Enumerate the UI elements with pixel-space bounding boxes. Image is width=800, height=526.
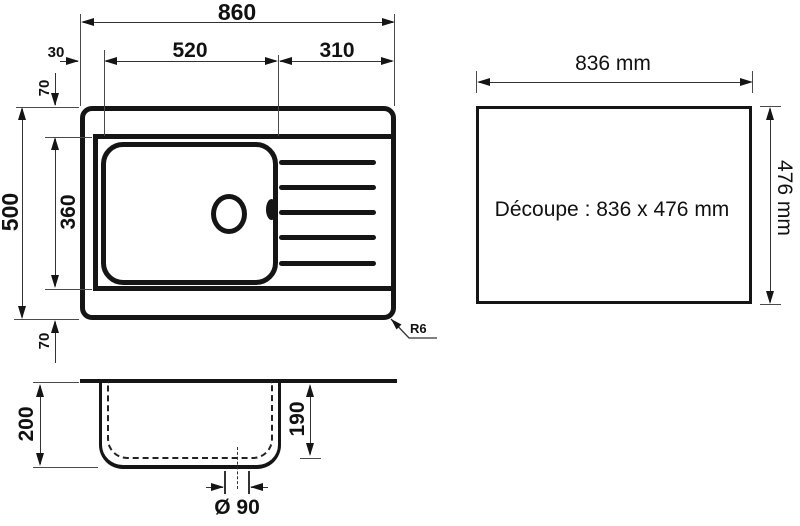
dim-label-860: 860 <box>197 1 277 24</box>
dim-line-360 <box>55 139 56 286</box>
bowl-outline <box>101 142 278 285</box>
extension-line <box>80 14 81 106</box>
cutout-height-label: 476 mm <box>774 160 795 236</box>
arrowhead-right <box>265 57 278 65</box>
drainer-groove <box>279 160 376 165</box>
arrowhead-down <box>766 291 774 304</box>
dim-label-190: 190 <box>286 389 308 449</box>
arrowhead-left <box>279 57 292 65</box>
drainer-groove <box>279 261 376 266</box>
drainer-groove <box>279 210 376 215</box>
dim-label-70-top: 70 <box>36 70 52 106</box>
arrowhead-left <box>250 483 263 491</box>
arrowhead-right <box>211 483 224 491</box>
extension-line <box>278 55 279 136</box>
arrowhead-down <box>51 275 59 288</box>
drainer-groove <box>279 185 376 190</box>
rim-inner-top-line <box>93 134 391 139</box>
extension-line <box>45 289 92 290</box>
drain-tick-left <box>224 471 226 494</box>
arrowhead-left <box>477 78 490 86</box>
arrowhead-left <box>104 57 117 65</box>
drain-circle <box>211 194 247 234</box>
dim-label-70-bottom: 70 <box>36 323 52 359</box>
dim-line-836 <box>479 82 750 83</box>
dim-label-drain: Ø 90 <box>205 497 269 518</box>
extension-line <box>300 458 321 459</box>
arrowhead-down <box>18 306 26 319</box>
rim-inner-left-line <box>93 134 98 291</box>
arrowhead-up <box>51 137 59 150</box>
arrowhead-up <box>36 384 44 397</box>
extension-line <box>14 319 79 320</box>
drain-centerline <box>237 447 238 489</box>
arrowhead-up <box>766 107 774 120</box>
dim-label-360: 360 <box>57 182 79 242</box>
arrowhead-down <box>36 453 44 466</box>
arrowhead-right <box>381 57 394 65</box>
cutout-width-label: 836 mm <box>553 53 673 74</box>
arrowhead-up <box>18 107 26 120</box>
dim-label-500: 500 <box>0 182 21 242</box>
technical-drawing: 860 520 310 30 500 360 70 70 R6 200 <box>0 0 800 526</box>
rim-inner-bottom-line <box>93 286 391 291</box>
dim-label-30: 30 <box>38 45 74 60</box>
extension-line <box>760 304 781 305</box>
extension-line <box>33 382 79 383</box>
dim-label-200: 200 <box>15 394 37 454</box>
dim-label-310: 310 <box>297 40 377 61</box>
dim-line-476 <box>770 109 771 302</box>
arrowhead-left <box>81 18 94 26</box>
radius-label-r6: R6 <box>410 322 427 335</box>
extension-line <box>33 467 98 468</box>
arrowhead-right <box>382 18 395 26</box>
dim-label-520: 520 <box>150 40 230 61</box>
arrowhead-right <box>740 78 753 86</box>
side-bowl-inner-dashed <box>107 381 273 459</box>
overflow-hole <box>266 199 277 220</box>
drainer-groove <box>279 235 376 240</box>
extension-line <box>394 14 395 106</box>
arrowhead-up <box>51 320 59 333</box>
cutout-text: Découpe : 836 x 476 mm <box>477 199 747 220</box>
